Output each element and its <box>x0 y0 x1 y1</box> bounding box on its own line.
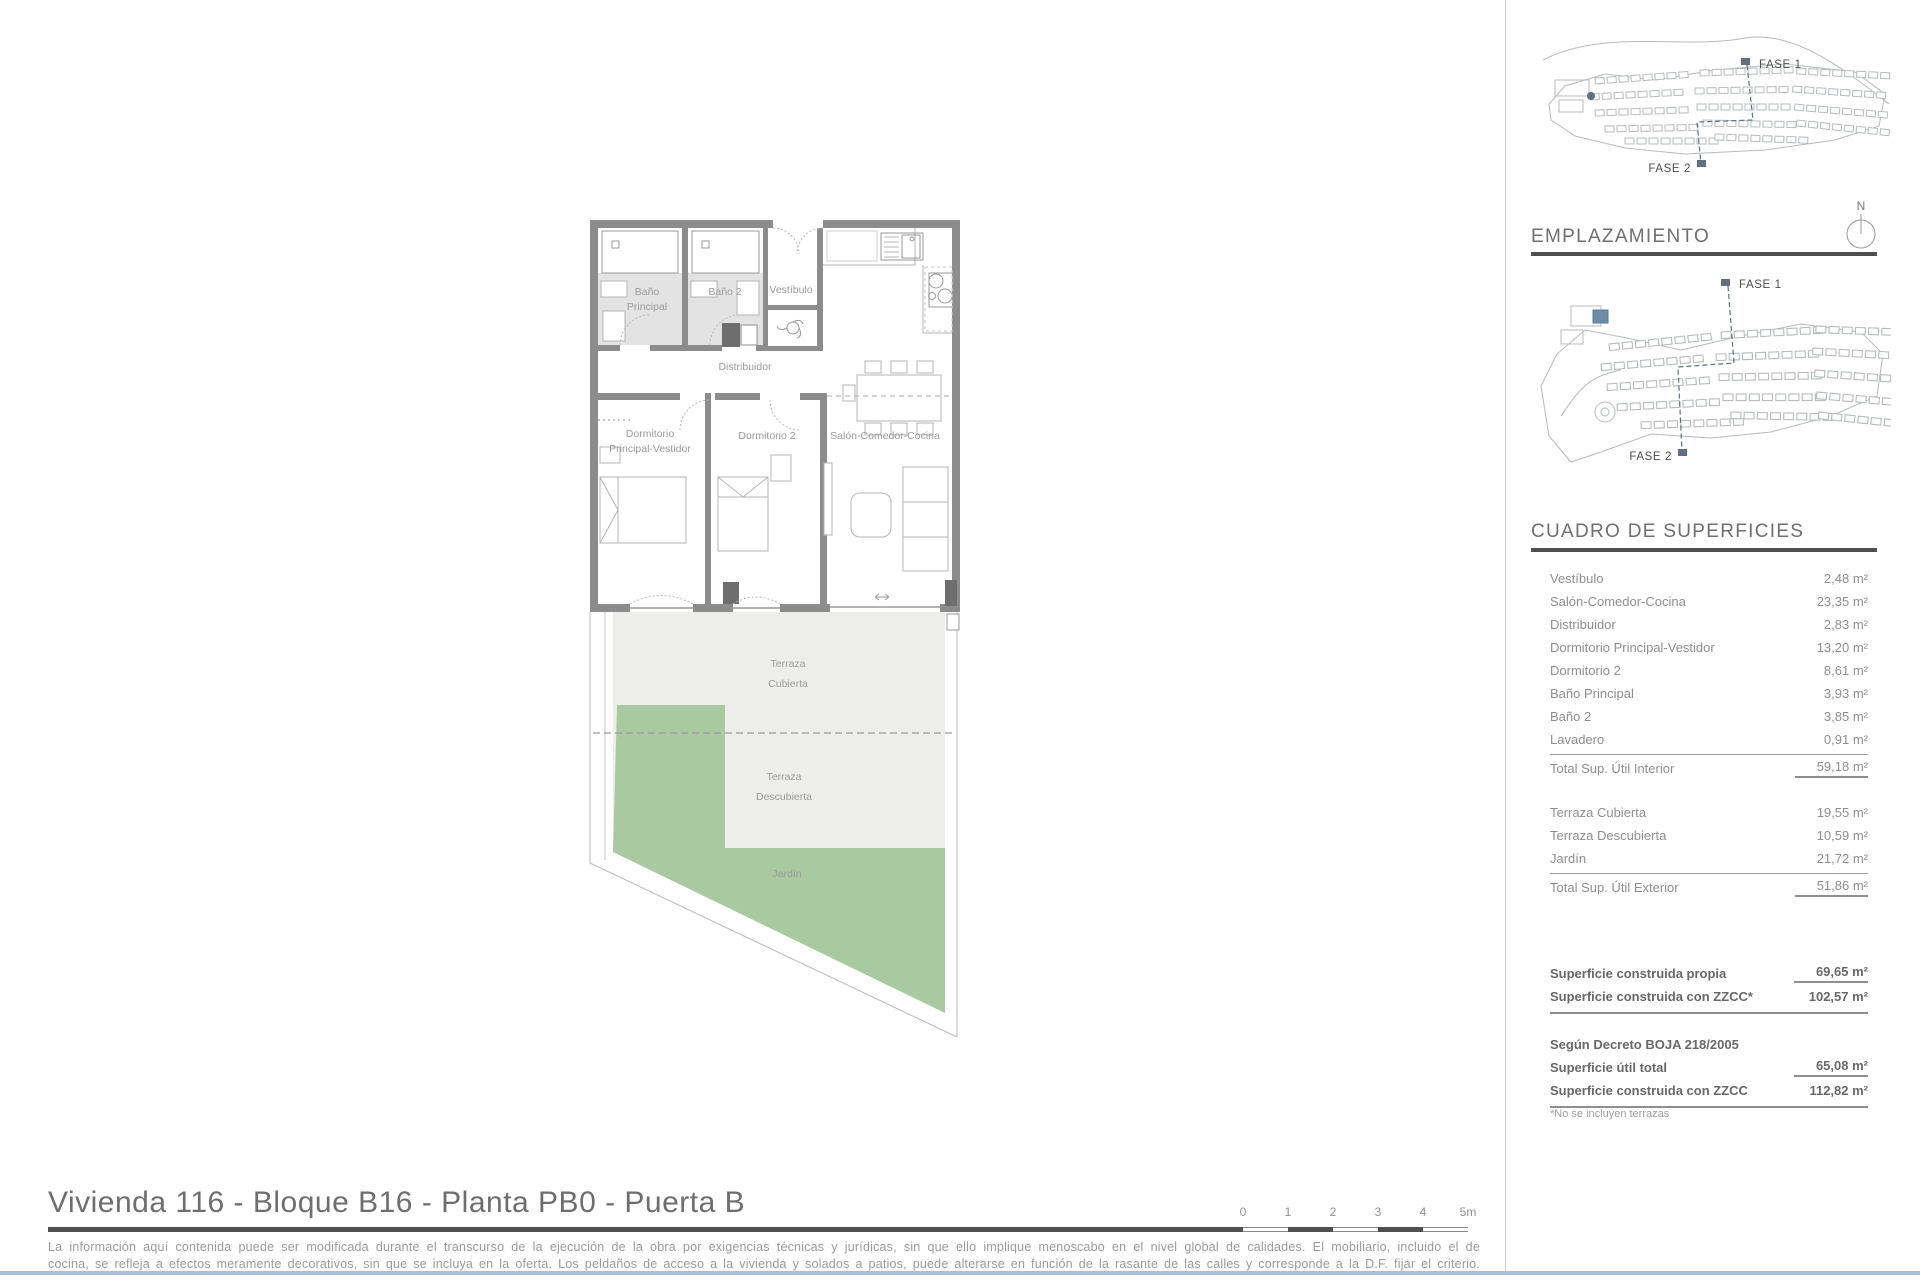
table-row: Vestíbulo 2,48 m² <box>1550 567 1868 590</box>
disclaimer-line: cocina, se refleja a efectos meramente d… <box>48 1256 1480 1272</box>
emplazamiento-site-map: FASE 1 FASE 2 <box>1531 266 1891 476</box>
decreto-row: Superficie útil total 65,08 m² <box>1550 1056 1868 1079</box>
scale-tick: 4 <box>1411 1205 1435 1219</box>
scale-tick: 1 <box>1276 1205 1300 1219</box>
scale-tick: 0 <box>1231 1205 1255 1219</box>
north-compass-icon: N <box>1838 196 1884 256</box>
room-label-distribuidor: Distribuidor <box>718 361 772 373</box>
decreto-row: Superficie construida con ZZCC 112,82 m² <box>1550 1079 1868 1102</box>
construida-row: Superficie construida propia 69,65 m² <box>1550 962 1868 985</box>
scale-tick: 3 <box>1366 1205 1390 1219</box>
table-row: Dormitorio Principal-Vestidor 13,20 m² <box>1550 636 1868 659</box>
exterior-surfaces-table: Terraza Cubierta 19,55 m² Terraza Descub… <box>1550 801 1868 899</box>
svg-text:Principal-Vestidor: Principal-Vestidor <box>609 443 691 455</box>
table-row: Salón-Comedor-Cocina 23,35 m² <box>1550 590 1868 613</box>
room-label-terraza-cubierta: Terraza <box>770 658 805 670</box>
svg-text:Principal: Principal <box>627 301 667 313</box>
bottom-accent-line <box>0 1271 1920 1275</box>
room-label-dormitorio-principal: Dormitorio <box>626 428 675 440</box>
fase1-label: FASE 1 <box>1739 279 1782 291</box>
fase1-flag <box>1721 279 1730 286</box>
location-dot <box>1587 92 1595 100</box>
superficies-heading: CUADRO DE SUPERFICIES <box>1531 521 1804 543</box>
table-row: Dormitorio 2 8,61 m² <box>1550 659 1868 682</box>
built-surface-block: Superficie construida propia 69,65 m² Su… <box>1550 962 1868 1014</box>
emplazamiento-heading-underline <box>1531 252 1877 256</box>
scale-tick: 5m <box>1456 1205 1480 1219</box>
interior-total-row: Total Sup. Útil Interior 59,18 m² <box>1550 754 1868 780</box>
superficies-heading-underline <box>1531 548 1877 552</box>
phase-boundary-line <box>1697 65 1753 164</box>
terraces-footnote: *No se incluyen terrazas <box>1550 1108 1669 1120</box>
decreto-block: Según Decreto BOJA 218/2005 Superficie ú… <box>1550 1032 1868 1108</box>
table-row: Baño Principal 3,93 m² <box>1550 682 1868 705</box>
table-row: Lavadero 0,91 m² <box>1550 728 1868 751</box>
svg-text:Descubierta: Descubierta <box>756 791 812 803</box>
fase2-label: FASE 2 <box>1629 451 1672 463</box>
fase1-label: FASE 1 <box>1759 59 1802 71</box>
interior-surfaces-table: Vestíbulo 2,48 m² Salón-Comedor-Cocina 2… <box>1550 567 1868 780</box>
room-label-jardin: Jardín <box>772 868 801 880</box>
highlighted-block <box>1593 310 1608 323</box>
fase2-flag <box>1678 449 1687 456</box>
room-label-terraza-descubierta: Terraza <box>766 771 801 783</box>
page-title: Vivienda 116 - Bloque B16 - Planta PB0 -… <box>48 1186 745 1220</box>
room-label-vestibulo: Vestíbulo <box>769 284 812 296</box>
fase2-label: FASE 2 <box>1648 163 1691 175</box>
scale-tick: 2 <box>1321 1205 1345 1219</box>
table-row: Baño 2 3,85 m² <box>1550 705 1868 728</box>
table-row: Terraza Cubierta 19,55 m² <box>1550 801 1868 824</box>
room-label-salon: Salón-Comedor-Cocina <box>830 430 940 442</box>
sidebar-divider <box>1505 0 1506 1272</box>
exterior-total-row: Total Sup. Útil Exterior 51,86 m² <box>1550 873 1868 899</box>
svg-text:Cubierta: Cubierta <box>768 678 808 690</box>
decreto-heading: Según Decreto BOJA 218/2005 <box>1550 1032 1868 1056</box>
title-underline <box>48 1227 1243 1232</box>
disclaimer-line: La información aquí contenida puede ser … <box>48 1239 1480 1255</box>
svg-text:N: N <box>1857 199 1866 213</box>
fase2-flag <box>1697 160 1706 167</box>
scale-bar <box>1243 1227 1468 1232</box>
floor-plan: Baño Principal Baño 2 Vestíbulo Distribu… <box>585 215 965 1050</box>
room-label-dormitorio2: Dormitorio 2 <box>738 430 795 442</box>
table-row: Jardín 21,72 m² <box>1550 847 1868 870</box>
table-row: Distribuidor 2,83 m² <box>1550 613 1868 636</box>
room-label-bano2: Baño 2 <box>708 286 741 298</box>
scale-bar-ticks: 0 12345m <box>1231 1205 1501 1221</box>
emplazamiento-heading: EMPLAZAMIENTO <box>1531 226 1710 248</box>
overview-site-map: FASE 1 FASE 2 <box>1535 8 1895 183</box>
room-label-bano-principal: Baño <box>635 286 660 298</box>
fase1-flag <box>1741 58 1750 65</box>
table-row: Terraza Descubierta 10,59 m² <box>1550 824 1868 847</box>
construida-row: Superficie construida con ZZCC* 102,57 m… <box>1550 985 1868 1008</box>
